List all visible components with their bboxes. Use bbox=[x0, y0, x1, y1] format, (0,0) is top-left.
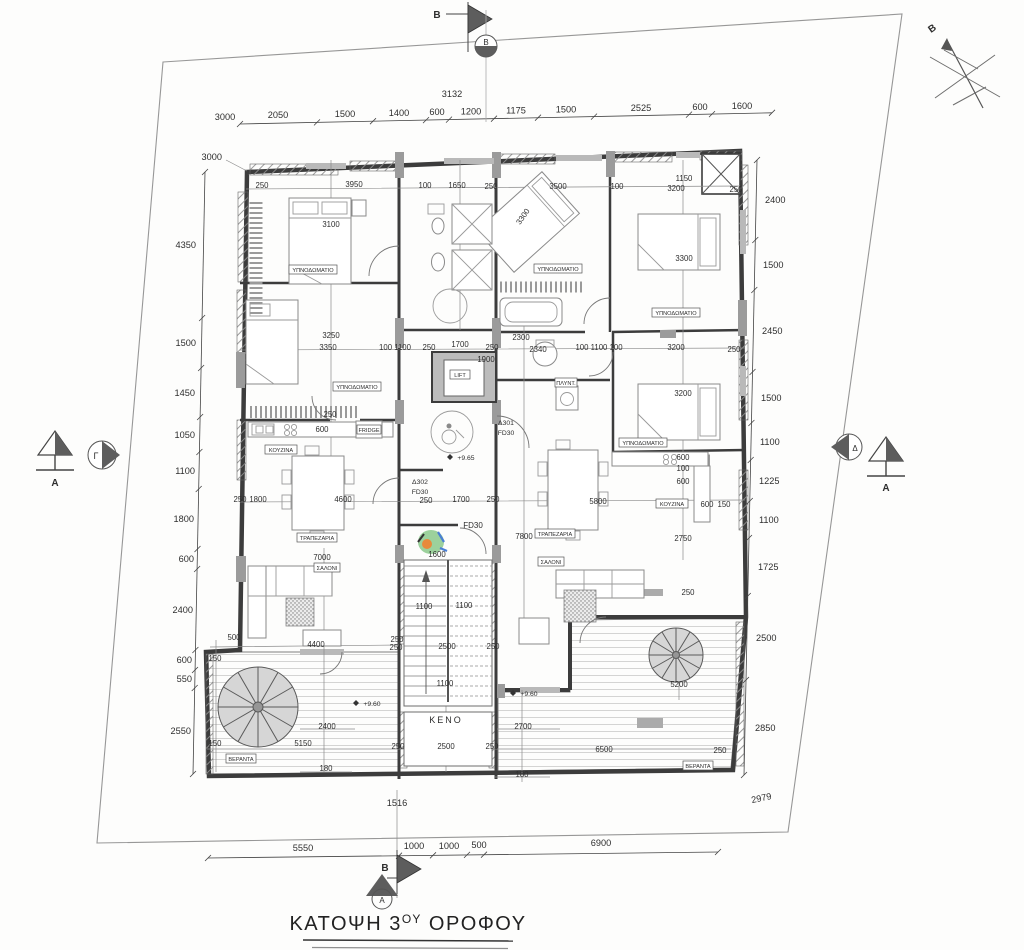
svg-text:ΠΛΥΝΤ.: ΠΛΥΝΤ. bbox=[556, 381, 576, 387]
dim-text: 1000 bbox=[439, 841, 459, 851]
svg-text:ΥΠΝΟΔΩΜΑΤΙΟ: ΥΠΝΟΔΩΜΑΤΙΟ bbox=[655, 311, 697, 317]
svg-text:ΒΕΡΑΝΤΑ: ΒΕΡΑΝΤΑ bbox=[685, 764, 711, 770]
dim-text: 1225 bbox=[759, 476, 779, 486]
svg-text:ΥΠΝΟΔΩΜΑΤΙΟ: ΥΠΝΟΔΩΜΑΤΙΟ bbox=[292, 268, 334, 274]
dim-text: 2500 bbox=[438, 642, 456, 651]
dim-text: 1700 bbox=[452, 495, 470, 504]
dim-text: 2750 bbox=[674, 534, 692, 543]
section-flag-icon bbox=[397, 855, 421, 883]
dim-text: 180 bbox=[319, 764, 333, 773]
dim-text: 3200 bbox=[667, 343, 685, 352]
section-marker-b-bottom: B A bbox=[366, 850, 421, 909]
room-label-veranda: ΒΕΡΑΝΤΑ bbox=[226, 754, 256, 763]
toilet bbox=[432, 253, 445, 271]
svg-text:ΥΠΝΟΔΩΜΑΤΙΟ: ΥΠΝΟΔΩΜΑΤΙΟ bbox=[336, 385, 378, 391]
room-label-bedroom: ΥΠΝΟΔΩΜΑΤΙΟ bbox=[619, 438, 667, 447]
dim-text: 3950 bbox=[345, 180, 363, 189]
door-tag: FD30 bbox=[412, 489, 429, 496]
section-marker-a-left: A bbox=[36, 431, 74, 489]
dim-text: 1600 bbox=[428, 550, 446, 559]
dim-text: 1500 bbox=[176, 338, 196, 348]
room-label-laundry: ΠΛΥΝΤ. bbox=[555, 378, 577, 387]
dim-text: 5550 bbox=[293, 843, 313, 853]
dimension-chain-bottom: 5550 1000 1000 500 6900 1516 bbox=[205, 790, 721, 898]
dim-text: 250 bbox=[681, 588, 695, 597]
level-text: +9.60 bbox=[520, 691, 537, 698]
dim-text: 250 bbox=[419, 496, 433, 505]
drawing-title: ΚΑΤΟΨΗ 3ΟΥ ΟΡΟΦΟΥ bbox=[289, 912, 526, 949]
door-tag: Δ302 bbox=[412, 479, 428, 486]
room-label-bedroom: ΥΠΝΟΔΩΜΑΤΙΟ bbox=[534, 264, 582, 273]
dining-table bbox=[538, 440, 608, 540]
svg-text:ΚΑΤΟΨΗ 3ΟΥ ΟΡΟΦΟΥ: ΚΑΤΟΨΗ 3ΟΥ ΟΡΟΦΟΥ bbox=[289, 912, 526, 935]
section-flag-icon bbox=[468, 5, 492, 33]
level-text: +9.65 bbox=[457, 455, 474, 462]
direction-triangle-icon bbox=[366, 874, 398, 896]
dim-text: 3132 bbox=[442, 89, 462, 99]
dim-text: 250 bbox=[486, 642, 500, 651]
dim-text: 3100 bbox=[322, 220, 340, 229]
accessible-wc bbox=[431, 411, 473, 453]
dim-text: 1450 bbox=[175, 388, 195, 398]
dim-text: 1600 bbox=[732, 101, 752, 111]
dim-text: 6500 bbox=[595, 745, 613, 754]
room-label-fridge: FRIDGE bbox=[357, 425, 381, 434]
dim-text: 1100 bbox=[437, 679, 454, 688]
marker-label: A bbox=[51, 478, 58, 489]
dim-text: 2500 bbox=[437, 742, 455, 751]
dim-text: 4600 bbox=[334, 495, 352, 504]
marker-label: B bbox=[381, 863, 388, 874]
title-part: ΟΡΟΦΟΥ bbox=[422, 913, 527, 935]
svg-text:ΤΡΑΠΕΖΑΡΙΑ: ΤΡΑΠΕΖΑΡΙΑ bbox=[538, 532, 573, 538]
dim-text: 2450 bbox=[762, 326, 782, 336]
dim-text: 2300 bbox=[512, 333, 530, 342]
door-tag: FD30 bbox=[498, 430, 515, 437]
marker-label: A bbox=[882, 483, 889, 494]
dim-text: 4400 bbox=[307, 640, 325, 649]
washing-machine bbox=[556, 386, 578, 410]
dim-text: 250 bbox=[233, 495, 247, 504]
dim-text: 250 bbox=[323, 410, 337, 419]
dim-text: 5150 bbox=[294, 739, 312, 748]
dim-text: 2400 bbox=[765, 195, 785, 205]
dim-text: 5800 bbox=[589, 497, 607, 506]
dim-text: 1800 bbox=[249, 495, 267, 504]
dim-text: 2700 bbox=[514, 722, 532, 731]
washbasin bbox=[432, 218, 444, 234]
dim-text: 1700 bbox=[451, 340, 469, 349]
dim-text: 250 bbox=[422, 343, 436, 352]
dim-text: 250 bbox=[729, 185, 743, 194]
dim-text: 2525 bbox=[631, 103, 651, 113]
dim-text: 250 bbox=[391, 742, 405, 751]
dim-text: 3000 bbox=[202, 152, 222, 162]
dim-text: 3200 bbox=[674, 389, 692, 398]
dim-text: 100 bbox=[418, 181, 432, 190]
svg-text:ΤΡΑΠΕΖΑΡΙΑ: ΤΡΑΠΕΖΑΡΙΑ bbox=[300, 536, 335, 542]
dim-text: 4350 bbox=[176, 240, 196, 250]
dim-text: 1500 bbox=[763, 260, 783, 270]
dim-text: 3200 bbox=[667, 184, 685, 193]
dim-text: 600 bbox=[177, 655, 192, 665]
level-text: +9.60 bbox=[363, 701, 380, 708]
dim-text: 100 1100 100 bbox=[575, 343, 623, 352]
dim-text: 250 bbox=[389, 643, 403, 652]
section-marker-b-top: B B bbox=[433, 2, 497, 122]
dim-text: 250 bbox=[485, 742, 499, 751]
dim-text: 150 bbox=[208, 654, 222, 663]
dim-text: 100 bbox=[676, 464, 690, 473]
kitchen-counter bbox=[612, 452, 710, 522]
dim-text: 250 bbox=[727, 345, 741, 354]
svg-text:ΒΕΡΑΝΤΑ: ΒΕΡΑΝΤΑ bbox=[228, 757, 254, 763]
dim-text: 2400 bbox=[318, 722, 336, 731]
dim-text: 250 bbox=[255, 181, 269, 190]
armchair bbox=[519, 618, 549, 644]
dim-text: 1725 bbox=[758, 562, 778, 572]
room-label-bedroom: ΥΠΝΟΔΩΜΑΤΙΟ bbox=[652, 308, 700, 317]
dim-text: 500 bbox=[471, 840, 486, 850]
dim-text: 2050 bbox=[268, 110, 288, 120]
dim-text: 600 bbox=[315, 425, 329, 434]
rug bbox=[286, 598, 314, 626]
dim-text: 3300 bbox=[675, 254, 693, 263]
title-sup: ΟΥ bbox=[402, 912, 422, 926]
spiral-stair-right bbox=[649, 628, 703, 682]
dim-text: 600 bbox=[676, 453, 690, 462]
svg-text:ΣΑΛΟΝΙ: ΣΑΛΟΝΙ bbox=[317, 566, 338, 572]
dim-text: 600 bbox=[700, 500, 714, 509]
dim-text: 2500 bbox=[756, 633, 776, 643]
dim-text: 600 bbox=[179, 554, 194, 564]
svg-text:ΥΠΝΟΔΩΜΑΤΙΟ: ΥΠΝΟΔΩΜΑΤΙΟ bbox=[622, 441, 664, 447]
dimension-chain-top: 3000 2050 1500 1400 600 1200 1175 1500 2… bbox=[215, 89, 775, 127]
dim-text: 600 bbox=[692, 102, 707, 112]
compass-label: B bbox=[926, 22, 938, 35]
dim-text: 1100 bbox=[456, 601, 473, 610]
dim-text: 1500 bbox=[335, 109, 355, 119]
dim-text: 3500 bbox=[549, 182, 567, 191]
dim-text: 1500 bbox=[761, 393, 781, 403]
dim-text: 1500 bbox=[556, 105, 576, 115]
axis-label: B bbox=[483, 38, 488, 47]
spiral-stair-left bbox=[218, 667, 298, 747]
dim-text: 3000 bbox=[215, 112, 235, 122]
dim-text: 1150 bbox=[676, 174, 693, 183]
dim-text: 7000 bbox=[313, 553, 331, 562]
room-label-kitchen: ΚΟΥΖΙΝΑ bbox=[265, 445, 297, 454]
dim-text: 6900 bbox=[591, 838, 611, 848]
room-label-void: ΚΕΝΟ bbox=[429, 715, 463, 725]
dim-text: 500 bbox=[227, 633, 241, 642]
dim-text: 2979 bbox=[750, 791, 772, 805]
main-staircase bbox=[404, 560, 492, 766]
axis-marker-gamma: Γ bbox=[88, 441, 120, 469]
dim-text: 5200 bbox=[670, 680, 688, 689]
dim-text: 3250 bbox=[322, 331, 340, 340]
dim-text: 2400 bbox=[173, 605, 193, 615]
dim-text: 600 bbox=[676, 477, 690, 486]
compass-north-icon: B bbox=[926, 22, 1000, 108]
dim-text: 1200 bbox=[461, 107, 481, 117]
dim-text: 1800 bbox=[174, 514, 194, 524]
dim-text: 1175 bbox=[506, 106, 526, 116]
marker-label: Γ bbox=[94, 451, 99, 461]
marker-label: Δ bbox=[852, 444, 858, 453]
dim-text: 250 bbox=[713, 746, 727, 755]
room-label-living: ΣΑΛΟΝΙ bbox=[538, 557, 564, 566]
dim-text: 2340 bbox=[529, 345, 547, 354]
dim-text: 250 bbox=[485, 343, 499, 352]
dim-text: 1050 bbox=[175, 430, 195, 440]
dim-text: 2850 bbox=[755, 723, 775, 733]
door-tag: FD30 bbox=[463, 521, 483, 530]
dim-text: 3350 bbox=[319, 343, 337, 352]
svg-text:ΥΠΝΟΔΩΜΑΤΙΟ: ΥΠΝΟΔΩΜΑΤΙΟ bbox=[537, 267, 579, 273]
dim-text: 250 bbox=[486, 495, 500, 504]
svg-text:ΣΑΛΟΝΙ: ΣΑΛΟΝΙ bbox=[541, 560, 562, 566]
room-label-dining: ΤΡΑΠΕΖΑΡΙΑ bbox=[297, 533, 337, 542]
section-marker-a-right: A bbox=[867, 437, 905, 494]
svg-text:FRIDGE: FRIDGE bbox=[358, 428, 379, 434]
title-part: ΚΑΤΟΨΗ 3 bbox=[289, 913, 401, 935]
dining-table bbox=[282, 446, 354, 540]
room-label-living: ΣΑΛΟΝΙ bbox=[314, 563, 340, 572]
dim-text: 1100 bbox=[759, 515, 779, 525]
dim-text: 250 bbox=[484, 182, 498, 191]
dim-text: 600 bbox=[429, 107, 444, 117]
sofa bbox=[248, 566, 341, 646]
dim-text: 180 bbox=[515, 770, 529, 779]
marker-label: B bbox=[433, 10, 440, 21]
dim-text: 1900 bbox=[477, 355, 495, 364]
room-label-veranda: ΒΕΡΑΝΤΑ bbox=[683, 761, 713, 770]
svg-text:LIFT: LIFT bbox=[454, 373, 466, 379]
dim-text: 1400 bbox=[389, 108, 409, 118]
room-label-kitchen: ΚΟΥΖΙΝΑ bbox=[656, 499, 688, 508]
dim-text: 1100 bbox=[760, 437, 780, 447]
room-label-dining: ΤΡΑΠΕΖΑΡΙΑ bbox=[535, 529, 575, 538]
dim-text: 1650 bbox=[448, 181, 466, 190]
marker-label: A bbox=[379, 896, 385, 905]
svg-text:ΚΟΥΖΙΝΑ: ΚΟΥΖΙΝΑ bbox=[269, 448, 293, 454]
svg-text:ΚΟΥΖΙΝΑ: ΚΟΥΖΙΝΑ bbox=[660, 502, 684, 508]
room-label-bedroom: ΥΠΝΟΔΩΜΑΤΙΟ bbox=[289, 265, 337, 274]
floor-plan-drawing: 3000 2050 1500 1400 600 1200 1175 1500 2… bbox=[0, 0, 1024, 950]
door-tag: Δ301 bbox=[498, 420, 514, 427]
axis-marker-delta: Δ bbox=[831, 434, 862, 460]
dim-text: 2550 bbox=[171, 726, 191, 736]
room-label-bedroom: ΥΠΝΟΔΩΜΑΤΙΟ bbox=[333, 382, 381, 391]
dim-text: 100 bbox=[610, 182, 624, 191]
room-label-lift: LIFT bbox=[450, 370, 470, 379]
dim-text: 1000 bbox=[404, 841, 424, 851]
dim-text: 550 bbox=[177, 674, 192, 684]
planter bbox=[637, 718, 663, 728]
rug bbox=[564, 590, 596, 622]
dim-text: 150 bbox=[717, 500, 731, 509]
dim-text: 150 bbox=[208, 739, 222, 748]
dim-text: 250 bbox=[390, 635, 404, 644]
dim-text: 1100 bbox=[416, 602, 433, 611]
dim-text: 100 1100 bbox=[379, 343, 412, 352]
floor-plan-canvas: 3000 2050 1500 1400 600 1200 1175 1500 2… bbox=[0, 0, 1024, 950]
dim-text: 7800 bbox=[515, 532, 533, 541]
dim-text: 1100 bbox=[175, 466, 195, 476]
